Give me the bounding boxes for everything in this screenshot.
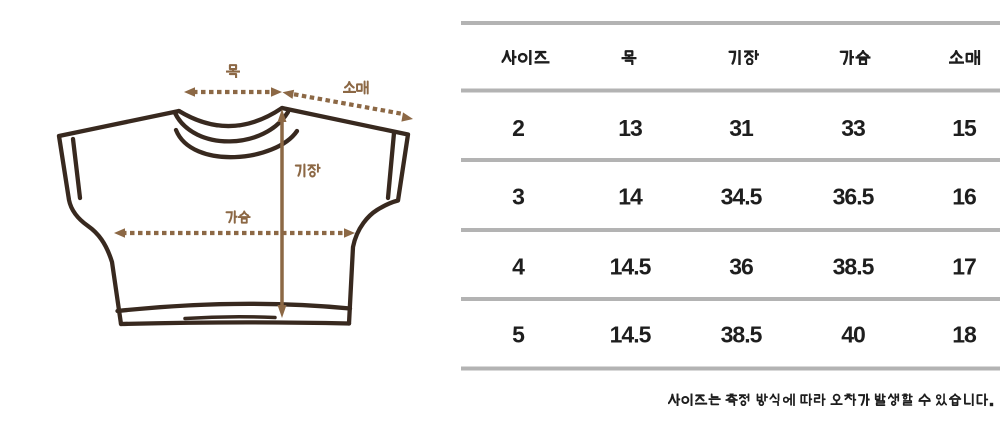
svg-text:31: 31: [729, 115, 754, 141]
svg-text:5: 5: [512, 322, 525, 348]
svg-text:36.5: 36.5: [833, 184, 875, 210]
svg-text:4: 4: [512, 254, 525, 280]
svg-text:33: 33: [841, 115, 865, 141]
svg-text:14.5: 14.5: [610, 254, 652, 280]
svg-text:13: 13: [618, 115, 642, 141]
svg-text:36: 36: [729, 254, 753, 280]
svg-text:14: 14: [618, 184, 643, 210]
svg-text:3: 3: [512, 184, 524, 210]
svg-text:38.5: 38.5: [721, 322, 763, 348]
svg-text:17: 17: [952, 254, 976, 280]
svg-text:16: 16: [952, 184, 976, 210]
svg-text:2: 2: [512, 115, 524, 141]
svg-text:14.5: 14.5: [610, 322, 652, 348]
svg-text:34.5: 34.5: [721, 184, 763, 210]
svg-text:15: 15: [952, 115, 977, 141]
svg-text:18: 18: [952, 322, 977, 348]
svg-text:38.5: 38.5: [833, 254, 875, 280]
svg-text:40: 40: [841, 322, 865, 348]
